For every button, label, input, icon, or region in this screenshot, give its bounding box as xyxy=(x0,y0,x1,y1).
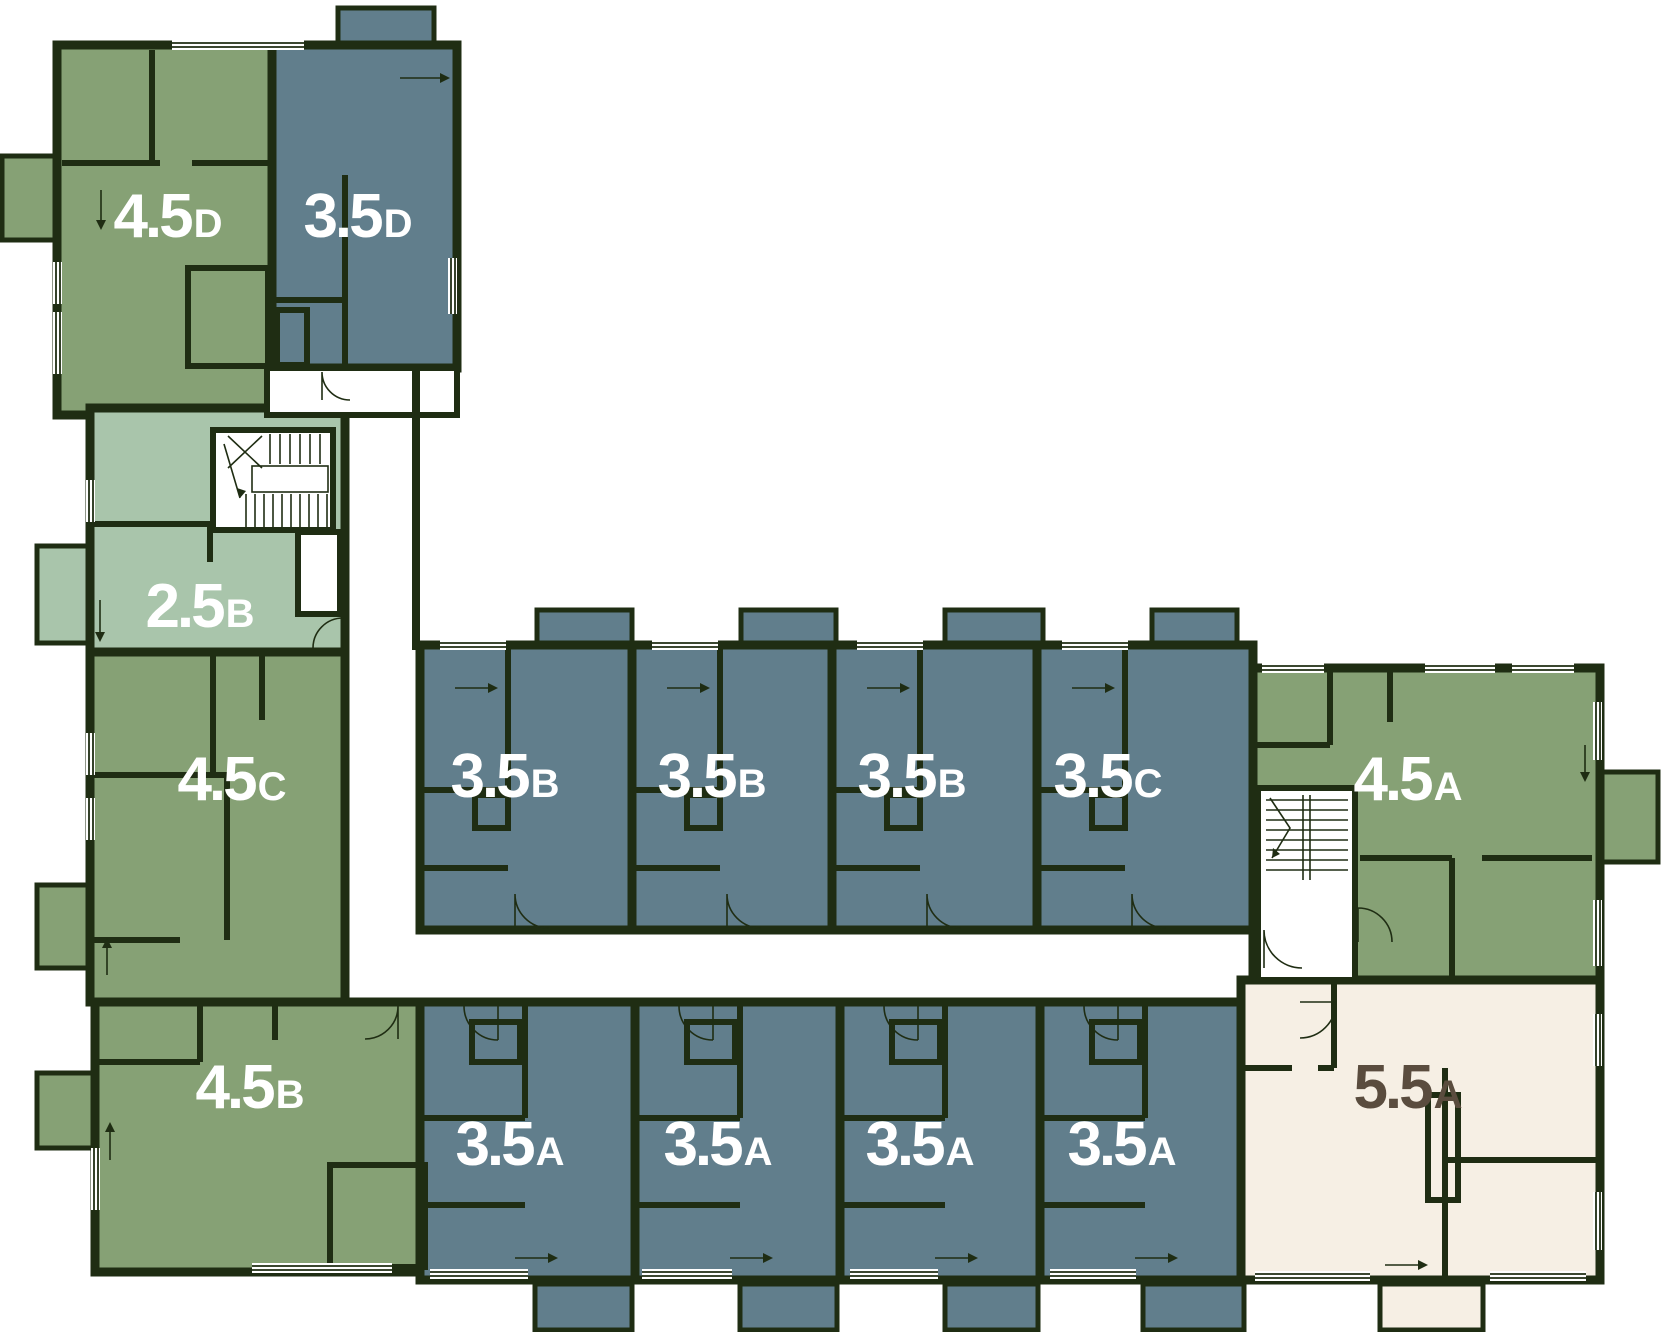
balcony-3.5A-2 xyxy=(740,1284,837,1330)
unit-5.5A-region[interactable] xyxy=(1241,980,1600,1280)
entry-corridor-northwest xyxy=(267,368,457,415)
floor-plan-drawing: 4.5D 3.5D 2.5B 4.5C 4.5B 3.5B 3.5B 3.5B … xyxy=(0,0,1661,1332)
floor-plan: 4.5D 3.5D 2.5B 4.5C 4.5B 3.5B 3.5B 3.5B … xyxy=(0,0,1661,1332)
balcony-3.5A-1 xyxy=(535,1284,632,1330)
stairwell-east xyxy=(1258,788,1355,980)
balcony-4.5B-left xyxy=(37,1073,95,1148)
balcony-5.5A-bottom xyxy=(1380,1284,1483,1330)
unit-4.5B-region[interactable] xyxy=(95,1002,430,1272)
balcony-4.5A-right xyxy=(1602,772,1658,862)
corridor-wall xyxy=(412,368,420,650)
balcony-3.5A-4 xyxy=(1143,1284,1244,1330)
balcony-4.5D-left xyxy=(2,156,60,240)
unit-4.5C-region[interactable] xyxy=(90,652,345,1002)
balcony-3.5A-3 xyxy=(945,1284,1038,1330)
